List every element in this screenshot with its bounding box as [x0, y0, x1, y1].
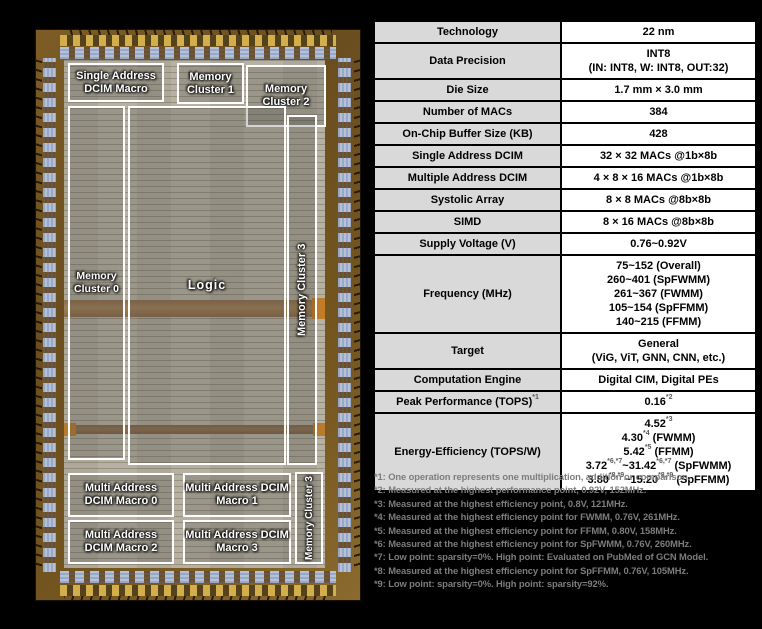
spec-text: Number of MACs: [423, 106, 512, 118]
spec-label-line: Number of MACs: [423, 105, 512, 119]
spec-value-line: Digital CIM, Digital PEs: [598, 373, 718, 387]
bond-pad-row-top-inner: [60, 47, 336, 59]
spec-label: Systolic Array: [375, 190, 562, 210]
die-region-single-address-dcim-macro: Single Address DCIM Macro: [68, 63, 164, 102]
spec-row: Peak Performance (TOPS)*10.16*2: [375, 392, 755, 414]
die-region-label: Macro 3: [216, 542, 258, 555]
spec-text: Digital CIM, Digital PEs: [598, 374, 718, 386]
footnote-marker: *6,*7: [656, 458, 671, 465]
spec-row: TargetGeneral(ViG, ViT, GNN, CNN, etc.): [375, 334, 755, 370]
spec-value: 1.7 mm × 3.0 mm: [562, 80, 755, 100]
spec-value: 32 × 32 MACs @1b×8b: [562, 146, 755, 166]
spec-value-line: 4.30*4 (FWMM): [622, 431, 696, 445]
spec-text: (IN: INT8, W: INT8, OUT:32): [589, 62, 729, 74]
footnote-line: *4: Measured at the highest efficiency p…: [374, 510, 762, 523]
die-region-label: Multi Address: [85, 482, 157, 495]
spec-label-line: Frequency (MHz): [423, 287, 512, 301]
die-region-label: Cluster 0: [74, 283, 119, 296]
spec-value-line: 261~367 (FWMM): [614, 287, 703, 301]
spec-label: SIMD: [375, 212, 562, 232]
footnote-line: *9: Low point: sparsity=0%. High point: …: [374, 577, 762, 590]
die-region-label: Macro 1: [216, 495, 258, 508]
spec-label-line: Data Precision: [429, 54, 505, 68]
footnote-marker: *5: [645, 444, 652, 451]
spec-value: 75~152 (Overall)260~401 (SpFWMM)261~367 …: [562, 256, 755, 332]
die-region-label: Logic: [188, 279, 226, 292]
spec-text: Peak Performance (TOPS): [396, 396, 532, 408]
spec-text: (FWMM): [650, 432, 696, 444]
die-region-label: DCIM Macro 2: [85, 542, 158, 555]
spec-text: 0.16: [644, 396, 665, 408]
spec-value-line: 428: [649, 127, 667, 141]
spec-value-line: 22 nm: [643, 25, 675, 39]
spec-value: 4 × 8 × 16 MACs @1b×8b: [562, 168, 755, 188]
spec-value-line: 75~152 (Overall): [616, 259, 701, 273]
spec-label-line: Single Address DCIM: [412, 149, 523, 163]
spec-text: Systolic Array: [431, 194, 505, 206]
spec-label-line: SIMD: [454, 215, 482, 229]
die-region-label: DCIM Macro 0: [85, 495, 158, 508]
spec-text: Die Size: [446, 84, 488, 96]
bond-pad-row-bottom-outer: [60, 585, 336, 596]
spec-row: Number of MACs384: [375, 102, 755, 124]
spec-text: 0.76~0.92V: [630, 238, 687, 250]
footnote-marker: *2: [666, 394, 673, 401]
spec-label-line: Die Size: [446, 83, 488, 97]
spec-text: 428: [649, 128, 667, 140]
spec-text: INT8: [647, 48, 671, 60]
spec-value: General(ViG, ViT, GNN, CNN, etc.): [562, 334, 755, 368]
spec-text: 4 × 8 × 16 MACs @1b×8b: [594, 172, 724, 184]
spec-value-line: 8 × 8 MACs @8b×8b: [606, 193, 711, 207]
spec-label-line: Target: [451, 344, 484, 358]
spec-label: Number of MACs: [375, 102, 562, 122]
spec-value-line: 0.76~0.92V: [630, 237, 687, 251]
spec-label: Data Precision: [375, 44, 562, 78]
spec-label: On-Chip Buffer Size (KB): [375, 124, 562, 144]
die-region-label: Memory: [265, 83, 307, 96]
spec-value: 8 × 16 MACs @8b×8b: [562, 212, 755, 232]
spec-text: Target: [451, 345, 484, 357]
spec-value: 8 × 8 MACs @8b×8b: [562, 190, 755, 210]
die-photo: Single Address DCIM Macro Memory Cluster…: [36, 30, 360, 600]
bond-pad-row-top-outer: [60, 35, 336, 46]
bond-pad-col-right: [338, 58, 351, 572]
spec-value-line: (ViG, ViT, GNN, CNN, etc.): [592, 351, 725, 365]
spec-label: Multiple Address DCIM: [375, 168, 562, 188]
spec-text: Single Address DCIM: [412, 150, 523, 162]
die-region-label: Multi Address DCIM: [185, 482, 289, 495]
spec-value-line: 8 × 16 MACs @8b×8b: [603, 215, 714, 229]
spec-value-line: 1.7 mm × 3.0 mm: [614, 83, 702, 97]
spec-text: General: [638, 338, 679, 350]
spec-row: Computation EngineDigital CIM, Digital P…: [375, 370, 755, 392]
spec-value-line: 5.42*5 (FFMM): [623, 445, 693, 459]
spec-row: Multiple Address DCIM4 × 8 × 16 MACs @1b…: [375, 168, 755, 190]
die-region-label: Cluster 1: [187, 84, 234, 97]
die-region-memory-cluster-0: Memory Cluster 0: [68, 106, 125, 460]
spec-text: 22 nm: [643, 26, 675, 38]
bond-wires-left: [36, 58, 42, 572]
spec-label: Peak Performance (TOPS)*1: [375, 392, 562, 412]
spec-text: (FFMM): [651, 446, 693, 458]
spec-text: 105~154 (SpFFMM): [609, 302, 708, 314]
spec-text: 261~367 (FWMM): [614, 288, 703, 300]
spec-value-line: 4.52*3: [644, 417, 672, 431]
spec-label-line: On-Chip Buffer Size (KB): [402, 127, 532, 141]
spec-value: INT8(IN: INT8, W: INT8, OUT:32): [562, 44, 755, 78]
spec-text: Multiple Address DCIM: [408, 172, 527, 184]
spec-row: Systolic Array8 × 8 MACs @8b×8b: [375, 190, 755, 212]
footnote-marker: *3: [666, 416, 673, 423]
bond-wires-right: [354, 58, 360, 572]
spec-text: 260~401 (SpFWMM): [607, 274, 710, 286]
footnote-line: *5: Measured at the highest efficiency p…: [374, 524, 762, 537]
footnote-line: *8: Measured at the highest efficiency p…: [374, 564, 762, 577]
spec-text: 5.42: [623, 446, 644, 458]
spec-value: 0.76~0.92V: [562, 234, 755, 254]
spec-value: 0.16*2: [562, 392, 755, 412]
die-region-label: Single Address: [76, 70, 156, 83]
spec-text: 32 × 32 MACs @1b×8b: [600, 150, 717, 162]
spec-text: 1.7 mm × 3.0 mm: [614, 84, 702, 96]
spec-row: Technology22 nm: [375, 22, 755, 44]
spec-text: 4.52: [644, 418, 665, 430]
bond-pad-row-bottom-inner: [60, 571, 336, 583]
spec-value-line: 140~215 (FFMM): [616, 315, 701, 329]
die-region-label: Memory Cluster 3: [304, 475, 315, 561]
spec-text: 8 × 8 MACs @8b×8b: [606, 194, 711, 206]
die-region-multi-address-dcim-macro-0: Multi Address DCIM Macro 0: [68, 473, 174, 517]
spec-value-line: (IN: INT8, W: INT8, OUT:32): [589, 61, 729, 75]
spec-text: 8 × 16 MACs @8b×8b: [603, 216, 714, 228]
die-region-label: Memory: [76, 270, 116, 283]
spec-text: (ViG, ViT, GNN, CNN, etc.): [592, 352, 725, 364]
die-region-label: Multi Address DCIM: [185, 529, 289, 542]
die-region-label: DCIM Macro: [84, 83, 148, 96]
spec-text: 384: [649, 106, 667, 118]
spec-text: 140~215 (FFMM): [616, 316, 701, 328]
spec-value-line: 384: [649, 105, 667, 119]
spec-label-line: Technology: [437, 25, 498, 39]
spec-row: SIMD8 × 16 MACs @8b×8b: [375, 212, 755, 234]
spec-label-line: Supply Voltage (V): [419, 237, 515, 251]
spec-label: Target: [375, 334, 562, 368]
spec-label-line: Computation Engine: [414, 373, 522, 387]
spec-label: Technology: [375, 22, 562, 42]
die-region-label: Multi Address: [85, 529, 157, 542]
spec-value-line: 105~154 (SpFFMM): [609, 301, 708, 315]
footnote-line: *7: Low point: sparsity=0%. High point: …: [374, 550, 762, 563]
spec-row: Data PrecisionINT8(IN: INT8, W: INT8, OU…: [375, 44, 755, 80]
spec-value: 428: [562, 124, 755, 144]
bond-pad-col-left: [43, 58, 56, 572]
die-region-memory-cluster-1: Memory Cluster 1: [177, 63, 244, 104]
spec-value: 384: [562, 102, 755, 122]
die-region-memory-cluster-3: Memory Cluster 3: [287, 115, 317, 465]
die-region-memory-cluster-3-lower: Memory Cluster 3: [295, 472, 323, 564]
spec-label: Frequency (MHz): [375, 256, 562, 332]
spec-row: On-Chip Buffer Size (KB)428: [375, 124, 755, 146]
spec-label-line: Energy-Efficiency (TOPS/W): [394, 445, 541, 459]
die-region-multi-address-dcim-macro-2: Multi Address DCIM Macro 2: [68, 520, 174, 564]
spec-label-line: Systolic Array: [431, 193, 505, 207]
footnote-line: *3: Measured at the highest efficiency p…: [374, 497, 762, 510]
die-region-logic: Logic: [128, 106, 286, 465]
spec-row: Frequency (MHz)75~152 (Overall)260~401 (…: [375, 256, 755, 334]
spec-value-line: INT8: [647, 47, 671, 61]
spec-value-line: 32 × 32 MACs @1b×8b: [600, 149, 717, 163]
spec-text: Data Precision: [429, 55, 505, 67]
spec-text: Technology: [437, 26, 498, 38]
spec-value: Digital CIM, Digital PEs: [562, 370, 755, 390]
spec-value-line: General: [638, 337, 679, 351]
spec-label: Supply Voltage (V): [375, 234, 562, 254]
spec-value-line: 0.16*2: [644, 395, 672, 409]
die-region-multi-address-dcim-macro-3: Multi Address DCIM Macro 3: [183, 520, 291, 564]
spec-text: 75~152 (Overall): [616, 260, 701, 272]
footnote-marker: *6,*7: [607, 458, 622, 465]
footnote-marker: *4: [643, 430, 650, 437]
spec-text: On-Chip Buffer Size (KB): [402, 128, 532, 140]
spec-text: SIMD: [454, 216, 482, 228]
footnote-marker: *1: [532, 394, 539, 401]
die-region-multi-address-dcim-macro-1: Multi Address DCIM Macro 1: [183, 473, 291, 517]
footnote-line: *1: One operation represents one multipl…: [374, 470, 762, 483]
spec-text: Frequency (MHz): [423, 288, 512, 300]
spec-row: Supply Voltage (V)0.76~0.92V: [375, 234, 755, 256]
spec-label: Die Size: [375, 80, 562, 100]
die-region-label: Memory: [189, 71, 231, 84]
spec-label: Computation Engine: [375, 370, 562, 390]
spec-value-line: 4 × 8 × 16 MACs @1b×8b: [594, 171, 724, 185]
spec-table: Technology22 nmData PrecisionINT8(IN: IN…: [373, 20, 757, 492]
spec-row: Die Size1.7 mm × 3.0 mm: [375, 80, 755, 102]
spec-text: 4.30: [622, 432, 643, 444]
spec-label: Single Address DCIM: [375, 146, 562, 166]
spec-value-line: 260~401 (SpFWMM): [607, 273, 710, 287]
spec-text: Energy-Efficiency (TOPS/W): [394, 446, 541, 458]
spec-label-line: Peak Performance (TOPS)*1: [396, 395, 539, 409]
footnote-line: *2: Measured at the highest performance …: [374, 483, 762, 496]
footnotes: *1: One operation represents one multipl…: [374, 470, 762, 591]
footnote-line: *6: Measured at the highest efficiency p…: [374, 537, 762, 550]
spec-value: 22 nm: [562, 22, 755, 42]
spec-text: Computation Engine: [414, 374, 522, 386]
spec-row: Single Address DCIM32 × 32 MACs @1b×8b: [375, 146, 755, 168]
spec-label-line: Multiple Address DCIM: [408, 171, 527, 185]
spec-text: Supply Voltage (V): [419, 238, 515, 250]
die-region-label: Memory Cluster 3: [296, 117, 309, 463]
